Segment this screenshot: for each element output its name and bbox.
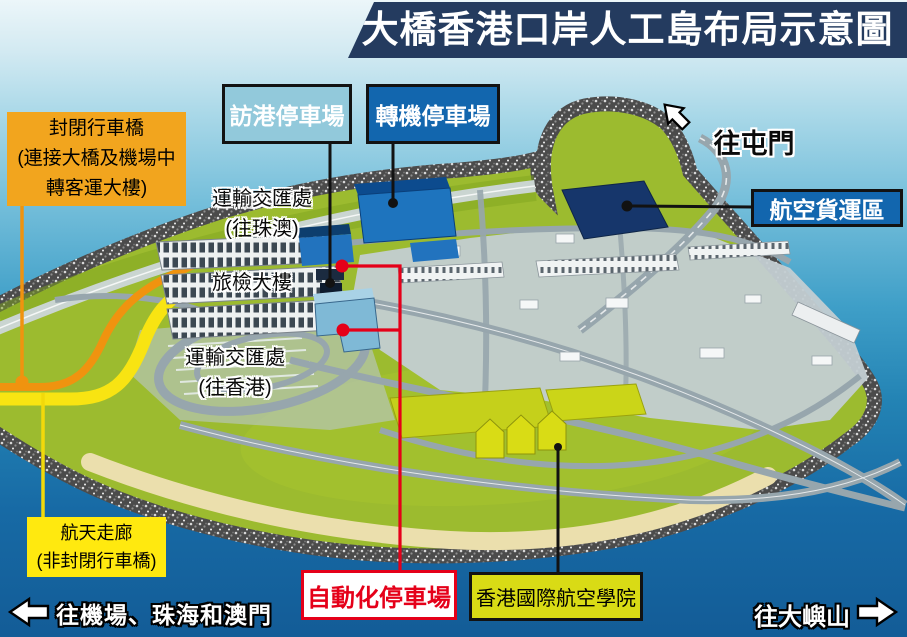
callout-line: 封閉行車橋 <box>49 114 144 144</box>
callout-transfer-carpark: 轉機停車場 <box>366 84 500 144</box>
callout-visit-carpark: 訪港停車場 <box>222 84 352 144</box>
callout-line: 轉客運大樓) <box>46 174 147 204</box>
map-label-line: 運輸交匯處 <box>197 184 327 214</box>
infographic-canvas: 大橋香港口岸人工島布局示意圖 訪港停車場 轉機停車場 航空貨運區 封閉行車橋 (… <box>0 0 907 637</box>
callout-closed-bridge: 封閉行車橋 (連接大橋及機場中 轉客運大樓) <box>7 112 186 206</box>
callout-line: (非封閉行車橋) <box>37 547 157 575</box>
map-label-line: (往香港) <box>172 373 298 403</box>
academy-marker-dot <box>554 443 562 451</box>
direction-label-airport-zhuhai-macau: 往機場、珠海和澳門 <box>56 596 296 630</box>
map-label-interchange-hong-kong: 運輸交匯處 (往香港) <box>172 343 298 403</box>
map-label-passenger-clearance-building: 旅檢大樓 <box>200 268 304 298</box>
callout-air-cargo-zone: 航空貨運區 <box>751 189 903 227</box>
page-title: 大橋香港口岸人工島布局示意圖 <box>348 2 907 58</box>
airport-direction-arrow-icon <box>10 599 48 625</box>
callout-aviation-academy: 香港國際航空學院 <box>469 572 643 621</box>
map-label-line: (往珠澳) <box>197 214 327 244</box>
callout-line: 航天走廊 <box>61 519 133 547</box>
direction-label-tuen-mun: 往屯門 <box>699 129 809 159</box>
callout-line: (連接大橋及機場中 <box>17 144 175 174</box>
automated-carpark-marker-dot-1 <box>336 260 349 273</box>
air-cargo-marker-dot <box>622 201 633 212</box>
map-label-interchange-zhuhai-macau: 運輸交匯處 (往珠澳) <box>197 184 327 244</box>
callout-automated-carpark: 自動化停車場 <box>301 570 457 620</box>
automated-carpark-marker-dot-2 <box>337 324 350 337</box>
map-label-line: 運輸交匯處 <box>172 343 298 373</box>
closed-bridge-marker-dot <box>16 376 29 389</box>
callout-sky-corridor: 航天走廊 (非封閉行車橋) <box>27 517 166 577</box>
direction-label-lantau: 往大嶼山 <box>754 597 864 632</box>
visit-carpark-marker-dot <box>325 278 335 288</box>
transfer-carpark-marker-dot <box>388 198 398 208</box>
